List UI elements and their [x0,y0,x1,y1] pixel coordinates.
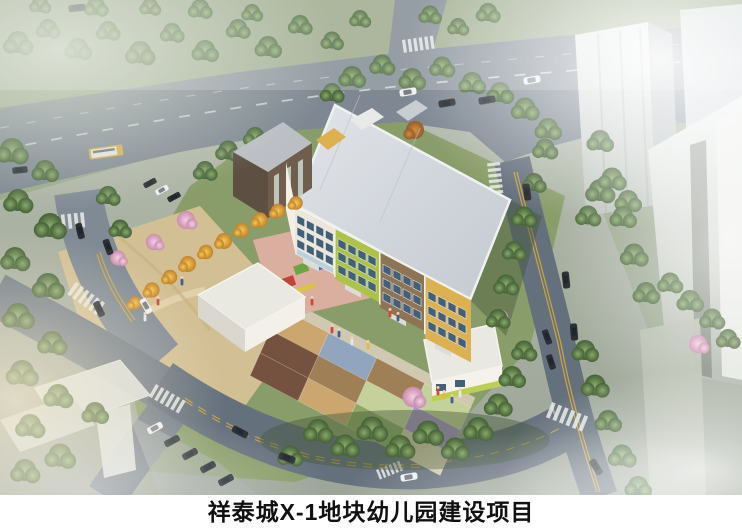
caption-bar: 祥泰城X-1地块幼儿园建设项目 [0,495,742,529]
rendering-page: 祥泰城X-1地块幼儿园建设项目 [0,0,742,529]
site-aerial-rendering [0,0,742,495]
fog-overlay [0,0,742,495]
project-title: 祥泰城X-1地块幼儿园建设项目 [208,495,535,529]
